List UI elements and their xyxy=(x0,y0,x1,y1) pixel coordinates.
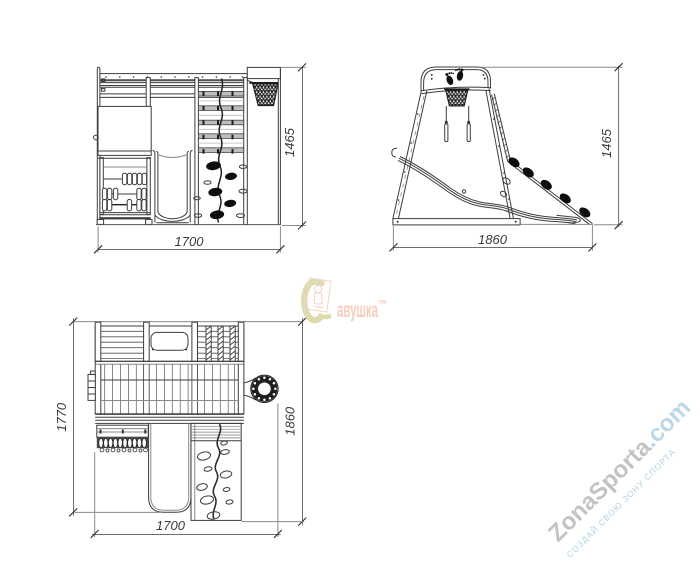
svg-text:TM: TM xyxy=(379,300,387,306)
svg-text:1700: 1700 xyxy=(175,234,205,249)
svg-text:1860: 1860 xyxy=(283,406,298,436)
svg-text:1770: 1770 xyxy=(54,402,69,432)
svg-text:1465: 1465 xyxy=(599,128,614,158)
svg-text:1465: 1465 xyxy=(282,127,297,157)
svg-text:авушка: авушка xyxy=(337,299,378,322)
svg-text:1700: 1700 xyxy=(156,518,186,533)
svg-text:1860: 1860 xyxy=(478,232,508,247)
